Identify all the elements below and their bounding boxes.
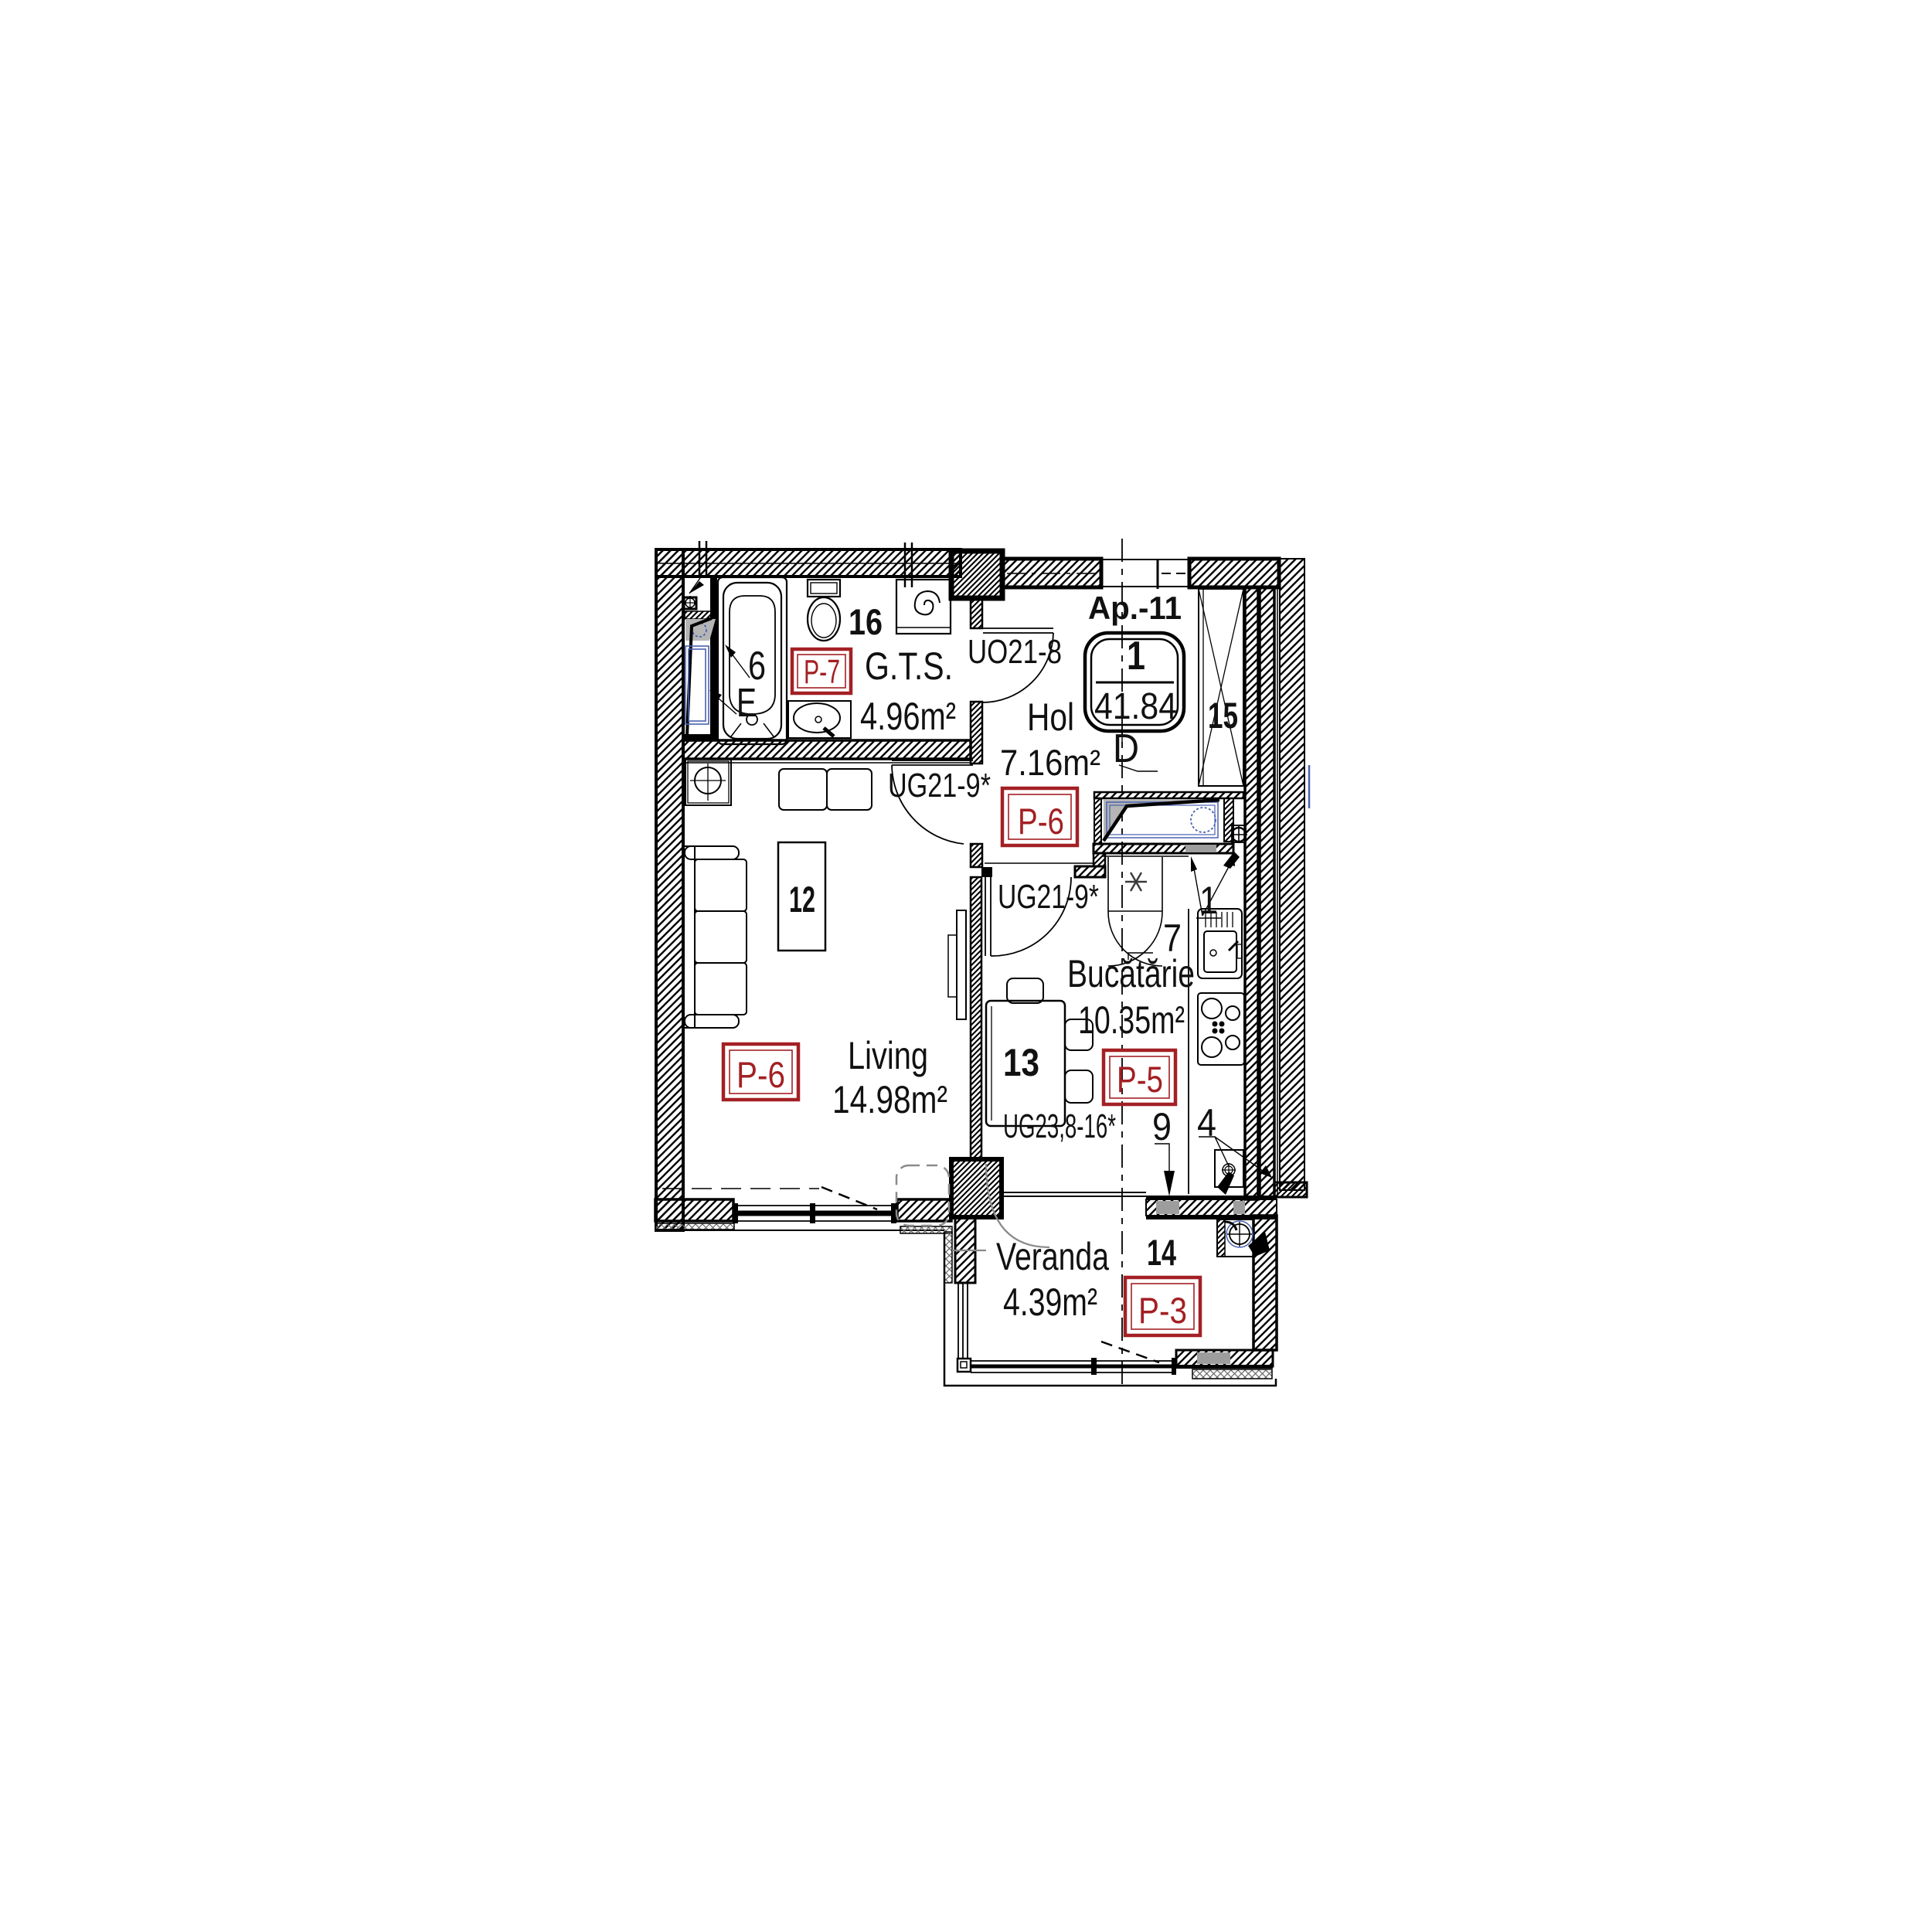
svg-text:P-6: P-6 <box>1018 801 1064 842</box>
svg-text:E: E <box>736 681 757 726</box>
svg-text:1: 1 <box>1199 879 1218 922</box>
svg-text:UO21-8: UO21-8 <box>968 633 1062 671</box>
svg-text:9: 9 <box>1152 1105 1172 1148</box>
svg-text:10.35m²: 10.35m² <box>1078 998 1185 1042</box>
svg-text:P-6: P-6 <box>736 1054 785 1095</box>
svg-text:15: 15 <box>1208 695 1238 736</box>
svg-text:G.T.S.: G.T.S. <box>865 645 953 688</box>
svg-text:Hol: Hol <box>1027 696 1074 739</box>
svg-text:D: D <box>1113 726 1139 771</box>
svg-text:P-5: P-5 <box>1117 1059 1163 1100</box>
svg-text:4: 4 <box>1197 1101 1216 1145</box>
svg-text:Living: Living <box>848 1034 928 1077</box>
svg-text:41.84: 41.84 <box>1094 686 1177 727</box>
svg-text:7: 7 <box>1163 917 1182 960</box>
svg-text:4.39m²: 4.39m² <box>1003 1281 1097 1324</box>
svg-text:12: 12 <box>789 879 815 920</box>
svg-text:13: 13 <box>1003 1041 1039 1084</box>
svg-text:14: 14 <box>1147 1232 1176 1273</box>
svg-text:16: 16 <box>849 601 883 642</box>
svg-text:P-3: P-3 <box>1138 1290 1187 1331</box>
svg-text:1: 1 <box>1127 634 1145 679</box>
svg-text:Ap.-11: Ap.-11 <box>1088 590 1182 626</box>
svg-text:UG23,8-16*: UG23,8-16* <box>1003 1107 1116 1145</box>
svg-text:14.98m²: 14.98m² <box>832 1078 947 1121</box>
svg-text:7.16m²: 7.16m² <box>1000 742 1100 783</box>
svg-text:UG21-9*: UG21-9* <box>998 878 1099 916</box>
svg-text:Veranda: Veranda <box>996 1235 1109 1278</box>
svg-text:UG21-9*: UG21-9* <box>888 767 991 804</box>
svg-text:P-7: P-7 <box>804 653 840 691</box>
svg-text:4.96m²: 4.96m² <box>860 695 956 738</box>
